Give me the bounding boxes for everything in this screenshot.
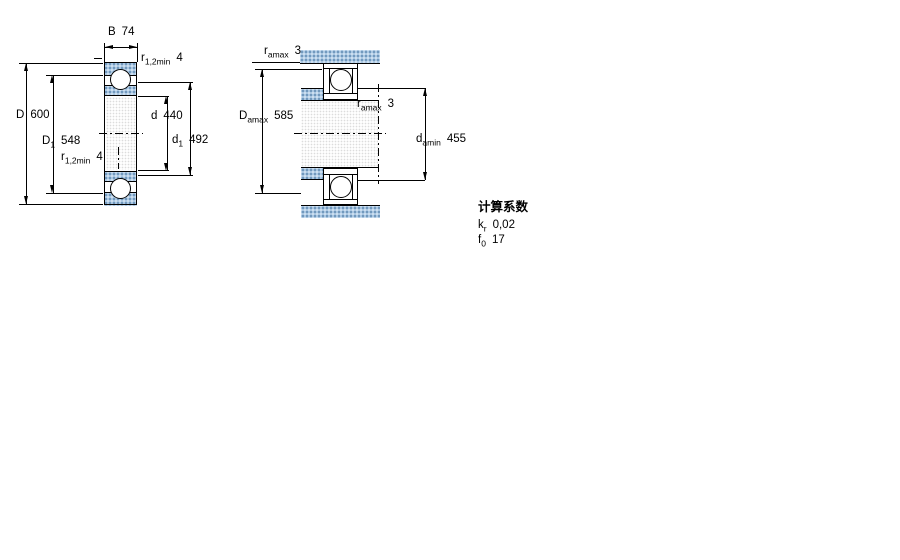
- dimension-line-D: [26, 63, 27, 205]
- dim-label-D: D600: [16, 109, 50, 123]
- arrowhead: [188, 167, 192, 175]
- arrowhead: [50, 185, 54, 193]
- horizontal-centerline: [99, 133, 143, 134]
- dim-label-d: d440: [151, 110, 183, 124]
- housing-section-bottom: [301, 205, 380, 219]
- extension-line-d1-bottom: [138, 175, 193, 176]
- extension-line-da-top: [358, 88, 425, 89]
- arrowhead: [164, 163, 168, 171]
- housing-section-top: [300, 50, 380, 64]
- dim-label-da: damin455: [416, 133, 466, 147]
- arrowhead: [423, 172, 427, 180]
- arrowhead: [129, 45, 137, 49]
- arrowhead: [24, 63, 28, 71]
- arrowhead: [260, 185, 264, 193]
- dim-label-d1: d1492: [172, 134, 208, 148]
- race-shoulder-line: [352, 175, 353, 200]
- vertical-centerline-segment: [118, 147, 119, 169]
- dimension-line-D1: [53, 75, 54, 193]
- horizontal-centerline: [294, 133, 386, 134]
- extension-line-D-top: [19, 63, 103, 64]
- dim-label-r-top: r1,2min4: [141, 52, 183, 66]
- dimension-line-Da: [262, 69, 263, 194]
- bearing-drawing-canvas: B74 r1,2min4 D600 D1548 d440 d1492 r1,2m…: [0, 0, 900, 560]
- ra-leader-line: [252, 62, 300, 63]
- arrowhead: [50, 75, 54, 83]
- arrowhead: [260, 69, 264, 77]
- extension-line-D1-bottom: [46, 193, 103, 194]
- arrowhead: [423, 88, 427, 96]
- extension-line-B-right: [137, 43, 138, 62]
- race-shoulder-line: [352, 68, 353, 93]
- factor-f0: f017: [478, 234, 505, 248]
- extension-line-Da-top: [255, 69, 322, 70]
- dim-label-B: B74: [108, 26, 134, 40]
- arrowhead: [24, 196, 28, 204]
- factor-kr: kr0,02: [478, 219, 515, 233]
- ball-top: [330, 69, 352, 91]
- extension-line-D-bottom: [19, 204, 103, 205]
- extension-line-d1-top: [138, 82, 193, 83]
- shaft-shoulder-bottom: [301, 168, 323, 180]
- ball-bottom: [330, 176, 352, 198]
- dim-label-D1: D1548: [42, 135, 80, 149]
- arrowhead: [188, 82, 192, 90]
- dim-label-r-bottom: r1,2min4: [61, 151, 103, 165]
- chamfer-leader-line: [94, 58, 102, 59]
- arrowhead: [164, 96, 168, 104]
- extension-line-Da-bottom: [255, 193, 301, 194]
- dim-label-Da: Damax585: [239, 110, 293, 124]
- dim-label-ra-mid: ramax3: [357, 98, 394, 112]
- dimension-line-d1: [190, 82, 191, 175]
- factors-heading: 计算系数: [478, 196, 528, 215]
- dimension-line-d: [167, 96, 168, 171]
- shaft-shoulder-top: [301, 88, 323, 100]
- dim-label-ra-top: ramax3: [264, 45, 301, 59]
- arrowhead: [105, 45, 113, 49]
- extension-line-D1-top: [46, 75, 103, 76]
- extension-line-da-bottom: [358, 180, 425, 181]
